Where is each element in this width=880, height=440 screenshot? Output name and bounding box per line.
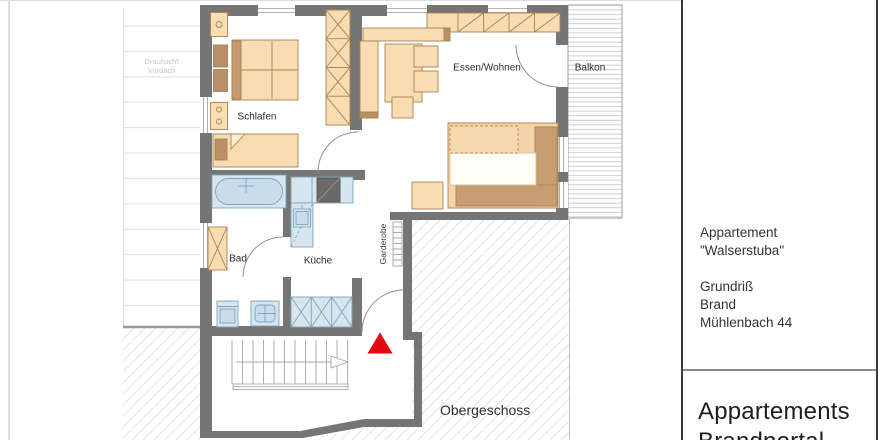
- canopy-note-line1: Draufsicht: [123, 57, 200, 66]
- floor-plan-sheet: Draufsicht Vordach Schlafen Essen/Wohnen…: [0, 0, 880, 440]
- room-label-living-dining: Essen/Wohnen: [453, 63, 521, 74]
- drawing-address: Mühlenbach 44: [700, 314, 792, 332]
- title-block-panel: Appartement "Walserstuba" Grundriß Brand…: [681, 0, 878, 440]
- pillow: [214, 45, 228, 67]
- wardrobe-closet: [326, 10, 350, 125]
- sheet-top-edge: [0, 0, 683, 1]
- bathroom-door-arc: [243, 237, 283, 277]
- drawing-title: Grundriß: [700, 278, 792, 296]
- apartment-name-block: Appartement "Walserstuba": [700, 224, 784, 260]
- coat-rack: [393, 222, 402, 266]
- canopy-note: Draufsicht Vordach: [123, 57, 200, 75]
- company-name-block: Appartements Brandnertal: [698, 397, 850, 440]
- bedroom-furniture: [211, 10, 351, 167]
- company-name-line1: Appartements: [698, 397, 850, 427]
- washing-machine: [217, 301, 238, 327]
- drawing-location: Brand: [700, 296, 792, 314]
- staircase: [232, 340, 348, 390]
- apartment-name-line1: Appartement: [700, 224, 784, 242]
- bathroom-fixtures: [208, 175, 286, 327]
- bathroom-cabinet: [208, 227, 227, 270]
- drawing-info-block: Grundriß Brand Mühlenbach 44: [700, 278, 792, 332]
- nightstand: [211, 13, 228, 37]
- entrance-door-arc: [362, 290, 404, 332]
- coffee-table: [412, 182, 443, 209]
- floor-label: Obergeschoss: [440, 402, 530, 418]
- toilet: [251, 301, 279, 326]
- bedroom-door-arc: [318, 132, 358, 172]
- balcony-deck: [568, 5, 622, 218]
- chair: [414, 46, 438, 67]
- bathtub: [212, 175, 286, 208]
- corner-bench: [360, 41, 378, 116]
- room-label-wardrobe: Garderobe: [378, 224, 388, 265]
- corner-bench: [363, 28, 450, 41]
- canopy-area: [123, 8, 200, 326]
- room-label-kitchen: Küche: [304, 256, 332, 267]
- chair: [392, 97, 413, 118]
- pillow: [215, 139, 227, 160]
- entrance-triangle-marker: [368, 333, 393, 354]
- stair-direction-arrow: [331, 356, 348, 368]
- chair: [414, 71, 438, 92]
- room-label-balcony: Balkon: [575, 63, 606, 74]
- title-block-divider: [683, 369, 876, 371]
- stove: [317, 178, 340, 202]
- company-name-line2: Brandnertal: [698, 427, 850, 440]
- living-furniture: [360, 13, 560, 209]
- pillow: [214, 70, 228, 92]
- room-label-bedroom: Schlafen: [238, 112, 277, 123]
- room-label-bathroom: Bad: [229, 254, 247, 265]
- sofa: [448, 123, 558, 208]
- kitchen-fixtures: [291, 177, 353, 327]
- canopy-note-line2: Vordach: [123, 66, 200, 75]
- apartment-name-line2: "Walserstuba": [700, 242, 784, 260]
- kitchen-lower-cabinets: [291, 297, 352, 327]
- balcony-door-arc: [516, 45, 558, 87]
